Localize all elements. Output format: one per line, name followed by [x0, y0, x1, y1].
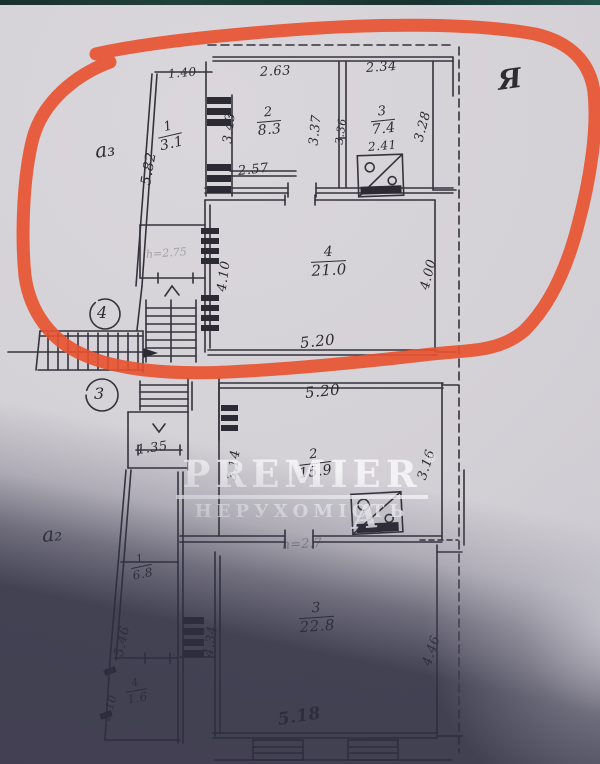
- scanned-floor-plan-photo: 1.40 2.63 2.34 5.82 3.43 3.37 3.36 3.28 …: [0, 0, 600, 764]
- watermark-brand-text: PREMIER: [183, 452, 422, 496]
- room-area: 21.0: [311, 261, 347, 280]
- dim-upper-stove: 2.41: [367, 139, 397, 153]
- dim-lower-top: 5.20: [304, 382, 341, 401]
- room-label-upper-3: 3 7.4: [369, 104, 396, 138]
- dim-upper-top-right: 2.34: [366, 60, 398, 75]
- dim-upper-r2-left: 3.43: [222, 112, 238, 144]
- entrance-badge-lower: 3: [94, 386, 104, 402]
- room-area: 8.3: [257, 121, 282, 139]
- room-label-upper-4: 4 21.0: [310, 244, 347, 279]
- photo-top-edge: [0, 0, 600, 5]
- watermark-brand: PREMIER®: [172, 456, 432, 493]
- dim-upper-r3-left: 3.36: [334, 117, 349, 145]
- registered-mark-icon: ®: [425, 452, 442, 464]
- dim-upper-passage: 2.57: [237, 162, 269, 178]
- watermark-logo-glyph: А: [351, 496, 381, 537]
- floor-plan-ink: [8, 45, 464, 760]
- height-note-lower: h=2.7: [282, 537, 323, 552]
- entrance-badge-upper: 4: [97, 305, 107, 321]
- wing-label-upper: а₃: [94, 138, 117, 161]
- dim-upper-top-mid: 2.63: [260, 64, 292, 79]
- window-symbols-bottom: [253, 740, 398, 760]
- height-note-upper: h=2.75: [146, 246, 187, 260]
- watermark-subtitle: НЕРУХОМІСТЬ: [172, 503, 432, 521]
- wing-label-lower: а₂: [41, 523, 63, 545]
- room-label-lower-4: 4 1.6: [124, 675, 149, 705]
- room-area: 7.4: [371, 119, 396, 137]
- watermark: PREMIER® НЕРУХОМІСТЬ: [172, 456, 432, 521]
- floor-plan-drawing: [0, 0, 600, 764]
- dim-upper-r2-right: 3.37: [308, 114, 324, 146]
- room-label-upper-2: 2 8.3: [256, 105, 282, 138]
- room-label-lower-3: 3 22.8: [298, 600, 336, 636]
- dim-upper-top-left: 1.40: [167, 66, 197, 80]
- room-area: 22.8: [299, 616, 335, 635]
- dim-upper-r4-bottom: 5.20: [299, 332, 336, 351]
- stove-icon-upper: [357, 154, 403, 197]
- corner-letter: Я: [496, 65, 523, 95]
